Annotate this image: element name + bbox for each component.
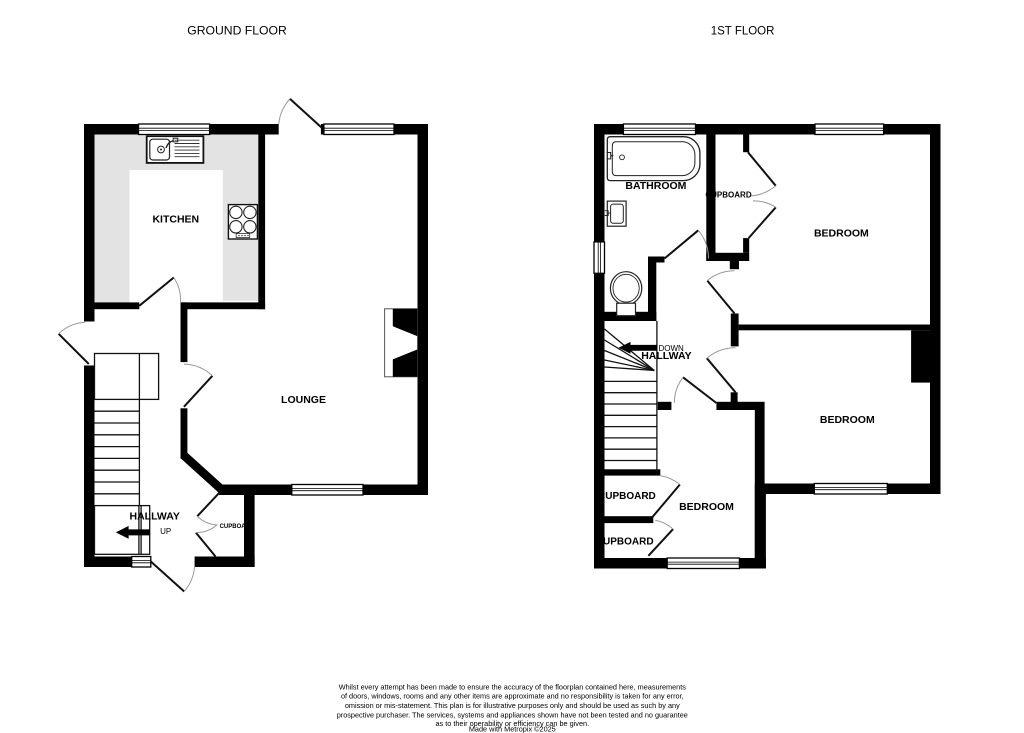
svg-text:Made with Metropix ©2025: Made with Metropix ©2025 [469, 725, 556, 733]
svg-text:CUPBOARD: CUPBOARD [705, 190, 751, 199]
svg-text:DOWN: DOWN [659, 344, 685, 353]
svg-text:UP: UP [160, 527, 171, 536]
svg-text:KITCHEN: KITCHEN [152, 214, 199, 226]
svg-text:omission or mis-statement. Thi: omission or mis-statement. This plan is … [345, 701, 680, 710]
svg-text:CUPBOARD: CUPBOARD [220, 524, 255, 530]
svg-text:prospective purchaser. The ser: prospective purchaser. The services, sys… [337, 710, 688, 719]
svg-text:CUPBOARD: CUPBOARD [596, 537, 654, 548]
svg-text:CUPBOARD: CUPBOARD [598, 491, 656, 502]
svg-text:BEDROOM: BEDROOM [814, 228, 869, 240]
svg-text:BEDROOM: BEDROOM [820, 414, 875, 426]
svg-text:Whilst every attempt has been: Whilst every attempt has been made to en… [339, 682, 687, 691]
svg-text:GROUND FLOOR: GROUND FLOOR [187, 23, 287, 37]
svg-text:of doors, windows, rooms and a: of doors, windows, rooms and any other i… [341, 692, 684, 701]
svg-text:HALLWAY: HALLWAY [130, 510, 180, 522]
svg-text:LOUNGE: LOUNGE [281, 394, 326, 406]
svg-text:BATHROOM: BATHROOM [625, 180, 686, 192]
svg-text:1ST FLOOR: 1ST FLOOR [711, 25, 775, 37]
svg-text:BEDROOM: BEDROOM [679, 501, 734, 513]
